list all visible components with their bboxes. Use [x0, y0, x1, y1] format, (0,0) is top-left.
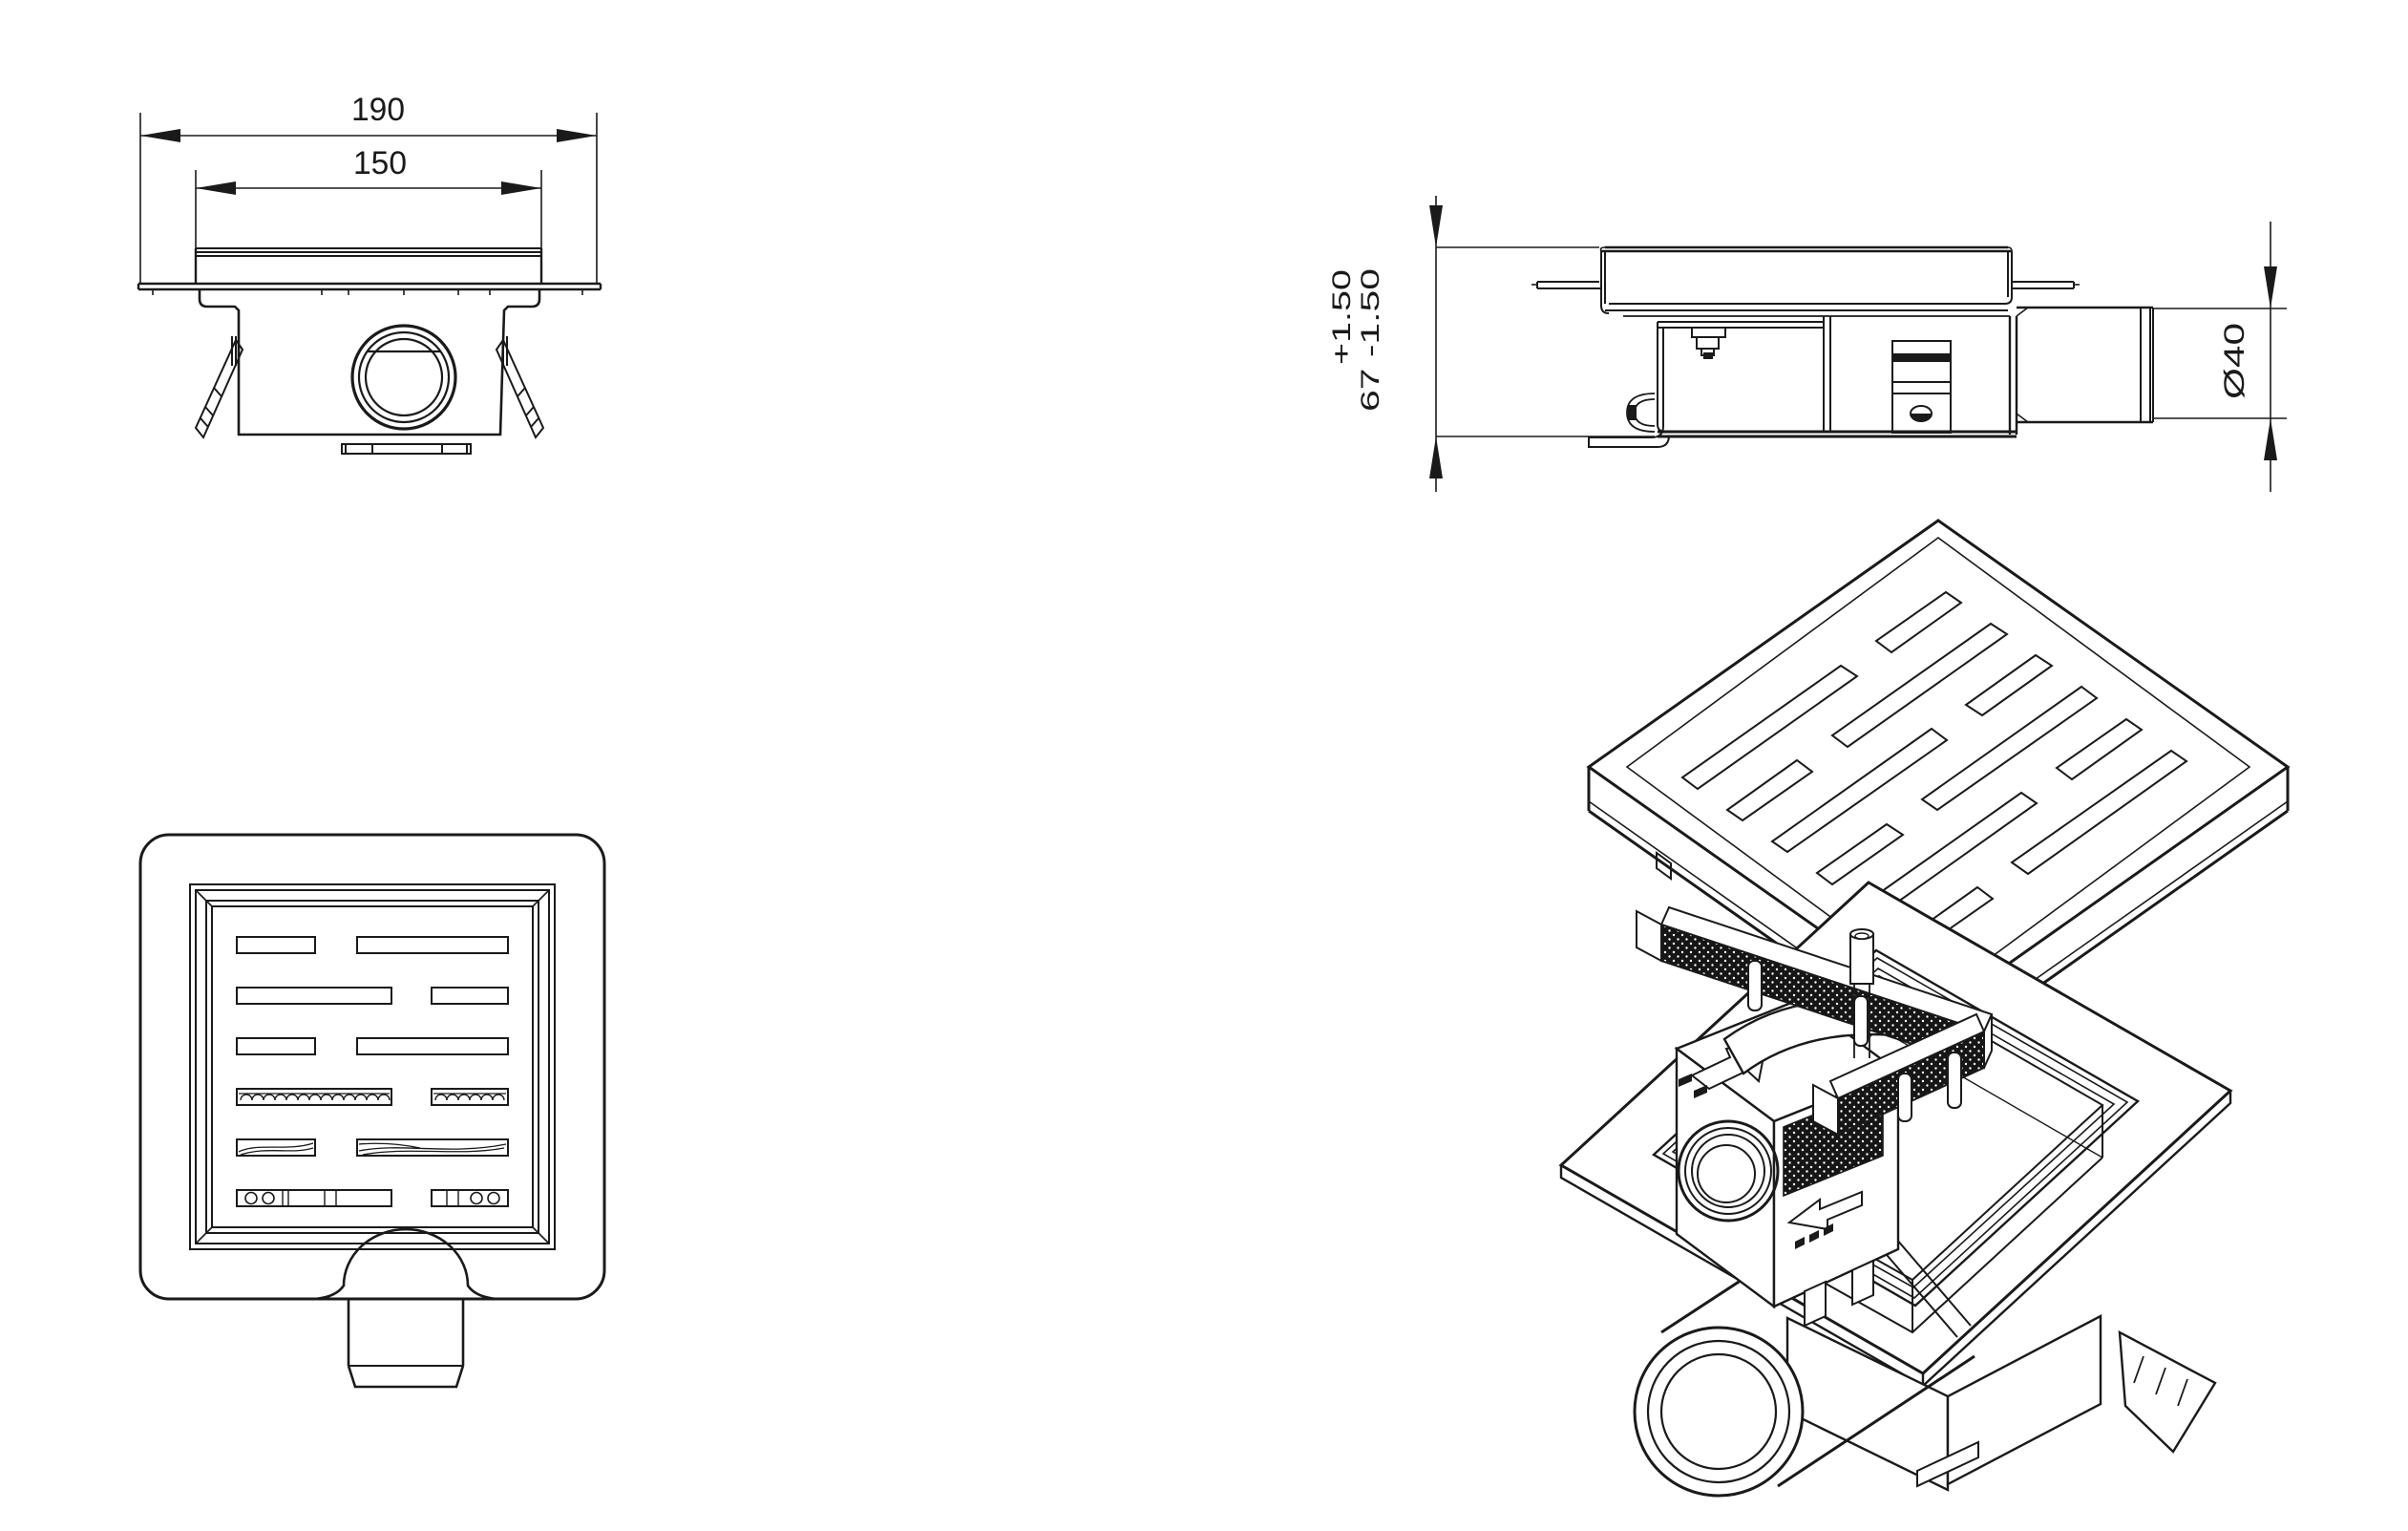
dim-tol-plus-label: +1.50: [1327, 269, 1356, 365]
front-flange: [138, 284, 601, 295]
pipe-dome: [315, 1229, 496, 1299]
top-slot-row4: [237, 1089, 508, 1105]
top-grate-slots: [237, 937, 508, 1206]
front-bottom-tab: [342, 444, 471, 454]
isometric-exploded-view: [1561, 521, 2288, 1496]
dim-67-label: 67 -1.50: [1356, 268, 1384, 412]
front-clip-right: [496, 336, 543, 437]
dim-150-label: 150: [353, 145, 407, 181]
ext-lines-150: [196, 170, 541, 248]
side-cartridge-clamp: [1892, 341, 1951, 433]
front-outlet-circle: [352, 326, 455, 429]
side-clip-notch: [1629, 406, 1636, 419]
dim-dia40-label: Ø40: [2219, 323, 2250, 399]
arrow-left-150: [196, 181, 236, 195]
front-section-view: 190 150: [138, 92, 601, 454]
front-grate-edge: [196, 248, 541, 284]
drawing-sheet: 190 150: [0, 0, 2408, 1531]
side-grate-flange: [1531, 247, 2080, 316]
top-slot-row5: [237, 1139, 508, 1156]
iso-underbody: [1787, 1316, 2215, 1490]
arrow-left-190: [140, 129, 180, 142]
drawing-canvas: 190 150: [0, 0, 2408, 1531]
side-outlet-pipe: [2017, 308, 2153, 422]
side-body: [1658, 316, 2017, 436]
iso-clip-wedge: [2120, 1332, 2215, 1452]
top-frame: [190, 884, 555, 1249]
top-outlet-pipe: [315, 1229, 496, 1387]
dim-190-label: 190: [351, 92, 405, 128]
side-dim-dia40: Ø40: [2153, 222, 2287, 492]
top-slot-row6: [237, 1190, 508, 1206]
arrow-right-190: [557, 129, 597, 142]
front-clip-left: [196, 336, 243, 437]
arrow-right-150: [501, 181, 541, 195]
ext-lines-190: [140, 113, 597, 284]
side-section-view: +1.50 67 -1.50: [1327, 196, 2287, 492]
top-plan-view: [140, 835, 604, 1387]
side-bracket: [1589, 322, 1824, 447]
